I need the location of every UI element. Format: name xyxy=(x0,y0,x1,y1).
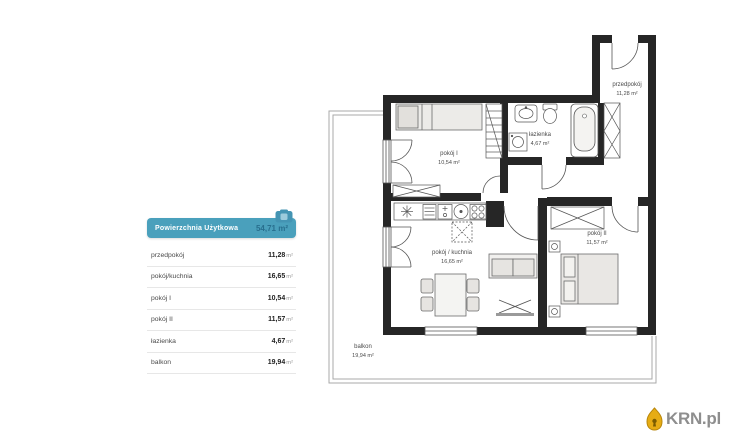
sink-icon xyxy=(515,105,537,122)
table-row: łazienka 4,67m² xyxy=(147,331,296,353)
room-area-value: 11,28m² xyxy=(268,252,293,259)
room-area-value: 11,57m² xyxy=(268,316,293,323)
room-area: 11,28 m² xyxy=(616,91,637,97)
krn-logo: KRN.pl xyxy=(645,407,721,431)
bed-single xyxy=(396,104,482,130)
room-name: pokój I xyxy=(440,151,458,157)
nightstand xyxy=(549,241,560,317)
header-total-value: 54,71 m² xyxy=(256,224,288,233)
room-label: pokój I xyxy=(151,295,171,302)
camera-icon xyxy=(275,209,293,223)
room-area: 16,65 m² xyxy=(441,259,463,265)
room-area-value: 16,65m² xyxy=(268,273,293,280)
area-table-rows: przedpokój 11,28m² pokój/kuchnia 16,65m²… xyxy=(147,245,296,374)
room-label: pokój/kuchnia xyxy=(151,273,193,280)
bathtub-icon xyxy=(571,104,598,157)
stove-icon xyxy=(470,205,486,220)
room-area: 19,94 m² xyxy=(352,353,374,359)
room-area-value: 10,54m² xyxy=(268,295,293,302)
room-label: balkon xyxy=(151,359,171,366)
floor-plan: pokój I 10,54 m² łazienka 4,67 m² przedp… xyxy=(318,24,670,392)
area-table-header: Powierzchnia Użytkowa 54,71 m² xyxy=(147,218,296,238)
bed-double xyxy=(561,254,618,304)
room-name: balkon xyxy=(354,344,372,350)
washing-machine-icon xyxy=(509,133,527,151)
wardrobe-shelves xyxy=(486,104,502,158)
dining-table xyxy=(421,274,479,316)
table-row: pokój II 11,57m² xyxy=(147,310,296,332)
room-area-value: 4,67m² xyxy=(272,338,293,345)
room-area: 11,57 m² xyxy=(586,240,607,246)
krn-house-icon xyxy=(645,407,664,431)
room-name: pokój / kuchnia xyxy=(432,250,473,256)
hood-fan-icon xyxy=(401,206,413,218)
room-name: pokój II xyxy=(587,231,607,237)
room-label: łazienka xyxy=(151,338,176,345)
room-name: przedpokój xyxy=(612,82,641,88)
sofa xyxy=(489,254,537,278)
tv-icon xyxy=(496,300,534,316)
dishwasher-icon xyxy=(423,205,436,220)
toilet-icon xyxy=(543,104,557,124)
page: Powierzchnia Użytkowa 54,71 m² przedpokó… xyxy=(0,0,740,443)
header-label: Powierzchnia Użytkowa xyxy=(155,225,238,232)
table-row: balkon 19,94m² xyxy=(147,353,296,375)
area-summary-panel: Powierzchnia Użytkowa 54,71 m² przedpokó… xyxy=(147,209,296,374)
table-row: pokój/kuchnia 16,65m² xyxy=(147,267,296,289)
kitchen-counter xyxy=(394,203,486,220)
room-label: pokój II xyxy=(151,316,173,323)
kitchen-sink-icon xyxy=(438,205,452,220)
room-label: przedpokój xyxy=(151,252,184,259)
logo-text: KRN.pl xyxy=(666,409,721,429)
table-row: przedpokój 11,28m² xyxy=(147,245,296,267)
dresser xyxy=(393,185,440,197)
table-row: pokój I 10,54m² xyxy=(147,288,296,310)
room-area-value: 19,94m² xyxy=(268,359,293,366)
hall-wardrobe xyxy=(604,103,620,158)
wardrobe-crossed xyxy=(551,207,604,229)
fold-table xyxy=(452,222,472,242)
room-name: łazienka xyxy=(529,132,552,138)
room-area: 10,54 m² xyxy=(438,160,460,166)
room-area: 4,67 m² xyxy=(531,141,550,147)
